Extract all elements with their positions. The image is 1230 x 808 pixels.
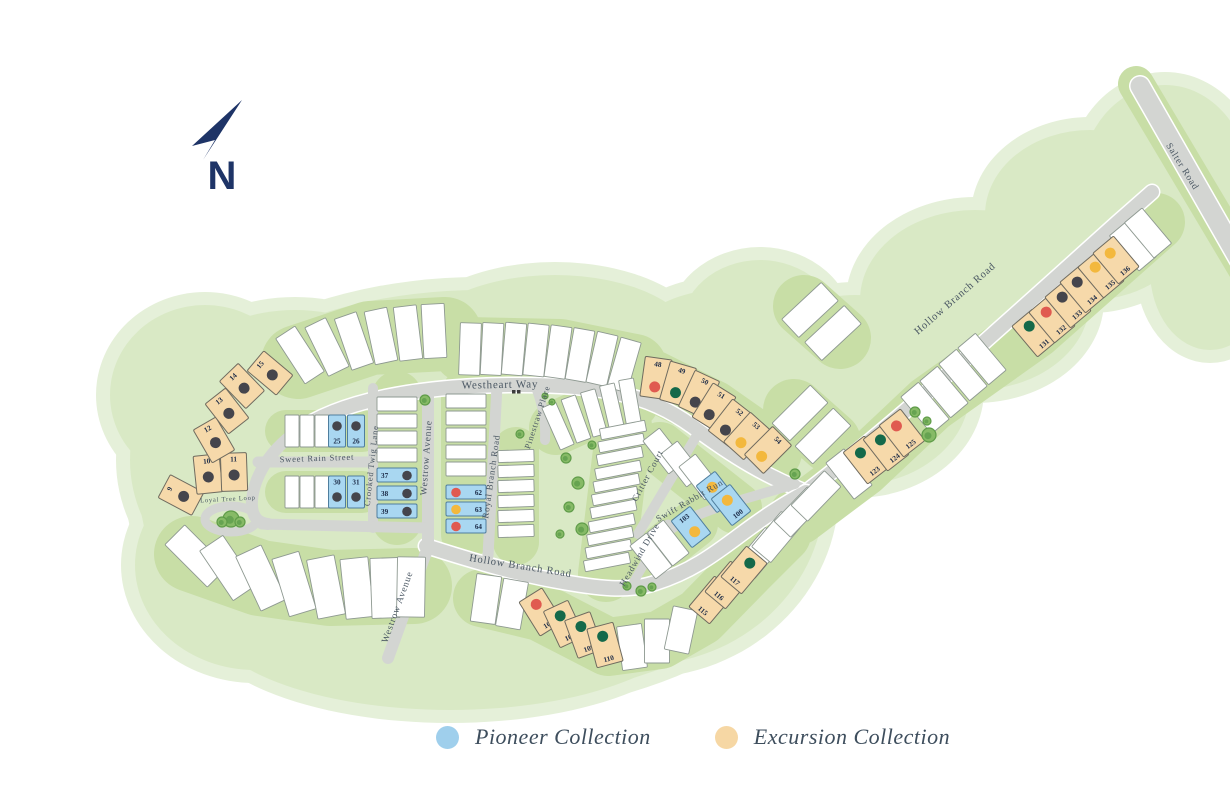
lot-38[interactable]: 38 (377, 486, 417, 500)
tree-icon (574, 481, 580, 487)
tree-icon (589, 443, 593, 447)
unlabeled-lot (446, 445, 486, 459)
tree-icon (924, 419, 928, 423)
tree-icon (422, 398, 427, 403)
legend-item-excursion: Excursion Collection (715, 724, 950, 750)
unlabeled-lot (315, 415, 329, 447)
unlabeled-lot (300, 476, 314, 508)
tree-icon (563, 456, 568, 461)
unlabeled-lot (377, 431, 417, 445)
unlabeled-lot (498, 479, 534, 492)
status-dot-red (451, 522, 461, 532)
lot-number: 37 (381, 472, 389, 480)
lot-number: 30 (333, 479, 341, 487)
unlabeled-lot (421, 303, 447, 358)
status-dot-dark (402, 489, 412, 499)
unlabeled-lot (377, 414, 417, 428)
tree-icon (638, 589, 643, 594)
unlabeled-lot (446, 394, 486, 408)
status-dot-dark (351, 492, 361, 502)
lot-number: 31 (352, 479, 360, 487)
status-dot-dark (332, 492, 342, 502)
north-label: N (208, 154, 237, 198)
unlabeled-lot (498, 464, 534, 477)
tree-icon (649, 585, 653, 589)
tree-icon (550, 401, 553, 404)
status-dot-yellow (451, 505, 461, 515)
status-dot-dark (351, 421, 361, 431)
lot-30[interactable]: 30 (329, 476, 346, 508)
legend-item-pioneer: Pioneer Collection (436, 724, 651, 750)
tree-icon (566, 505, 571, 510)
tree-icon (578, 527, 584, 533)
tree-icon (912, 410, 917, 415)
lot-37[interactable]: 37 (377, 468, 417, 482)
unlabeled-lot (498, 494, 534, 507)
north-arrow-icon (192, 100, 242, 160)
unlabeled-lot (459, 323, 482, 376)
status-dot-red (451, 488, 461, 498)
unlabeled-lot (315, 476, 329, 508)
lot-number: 38 (381, 490, 389, 498)
unlabeled-lot (480, 322, 504, 375)
unlabeled-lot (340, 557, 374, 620)
lot-number: 26 (352, 438, 360, 446)
unlabeled-lot (446, 462, 486, 476)
lot-number: 62 (475, 489, 483, 497)
tree-icon (792, 472, 797, 477)
unlabeled-lot (300, 415, 314, 447)
lot-number: 25 (333, 438, 341, 446)
lot-64[interactable]: 64 (446, 519, 486, 533)
lot-39[interactable]: 39 (377, 504, 417, 518)
map-legend: Pioneer Collection Excursion Collection (436, 724, 950, 750)
unlabeled-lot (446, 411, 486, 425)
map-svg: 9101112131415252630313738396263644849505… (0, 0, 1230, 808)
lot-26[interactable]: 26 (348, 415, 365, 447)
status-dot-dark (402, 507, 412, 517)
unlabeled-lot (446, 428, 486, 442)
map-canvas: 9101112131415252630313738396263644849505… (0, 0, 1230, 808)
lot-25[interactable]: 25 (329, 415, 346, 447)
status-dot-dark (332, 421, 342, 431)
pioneer-collection-swatch (436, 726, 459, 749)
lot-62[interactable]: 62 (446, 485, 486, 499)
status-dot-dark (402, 471, 412, 481)
unlabeled-lot (498, 509, 534, 522)
lot-number: 39 (381, 508, 389, 516)
lot-11[interactable]: 11 (220, 453, 247, 492)
lot-number: 11 (230, 455, 237, 463)
pioneer-collection-label: Pioneer Collection (475, 724, 651, 750)
tree-icon (557, 532, 561, 536)
unlabeled-lot (501, 322, 526, 376)
unlabeled-lot (285, 415, 299, 447)
unlabeled-lot (498, 524, 534, 537)
north-arrow: N (192, 100, 242, 198)
excursion-collection-label: Excursion Collection (754, 724, 950, 750)
tree-icon (924, 432, 931, 439)
lot-number: 64 (475, 523, 483, 531)
tree-icon (219, 520, 224, 525)
unlabeled-lot (285, 476, 299, 508)
unlabeled-lot (377, 397, 417, 411)
site-plan-map: 9101112131415252630313738396263644849505… (0, 0, 1230, 808)
road (262, 524, 428, 528)
street-label-westheart-way: Westheart Way (462, 378, 539, 391)
tree-icon (237, 520, 242, 525)
excursion-collection-swatch (715, 726, 738, 749)
tree-icon (517, 432, 521, 436)
unlabeled-lot (498, 449, 534, 462)
unlabeled-lot (377, 448, 417, 462)
